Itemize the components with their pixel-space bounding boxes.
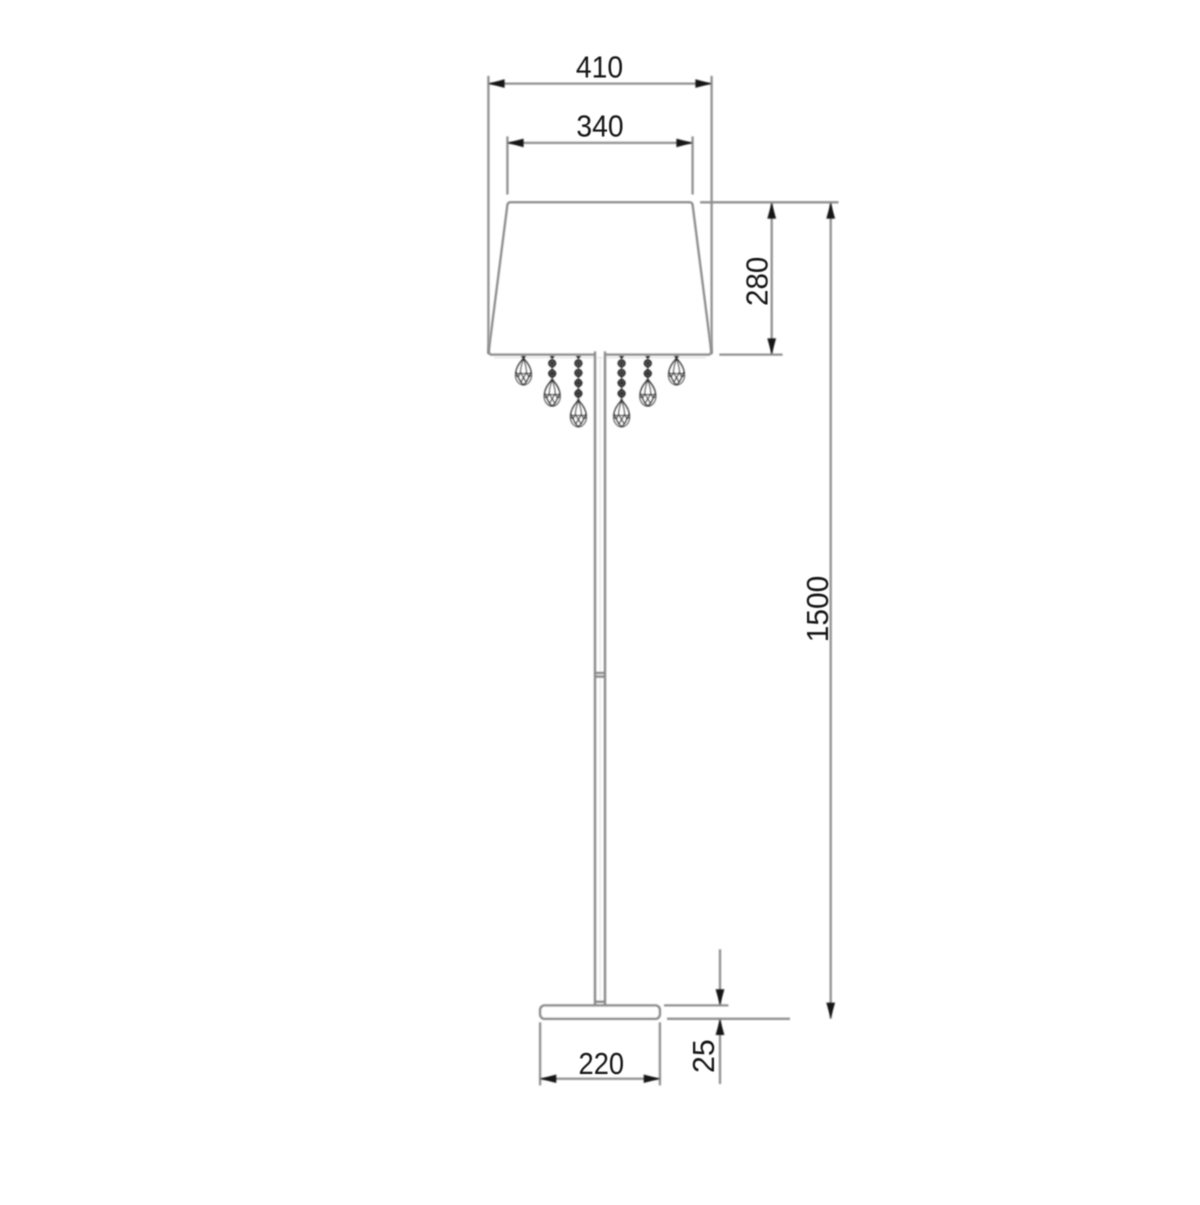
svg-text:25: 25: [686, 1039, 721, 1073]
svg-text:410: 410: [576, 49, 623, 84]
svg-text:280: 280: [740, 257, 775, 306]
svg-text:1500: 1500: [800, 576, 835, 643]
svg-text:340: 340: [576, 108, 623, 143]
svg-text:220: 220: [579, 1046, 625, 1081]
